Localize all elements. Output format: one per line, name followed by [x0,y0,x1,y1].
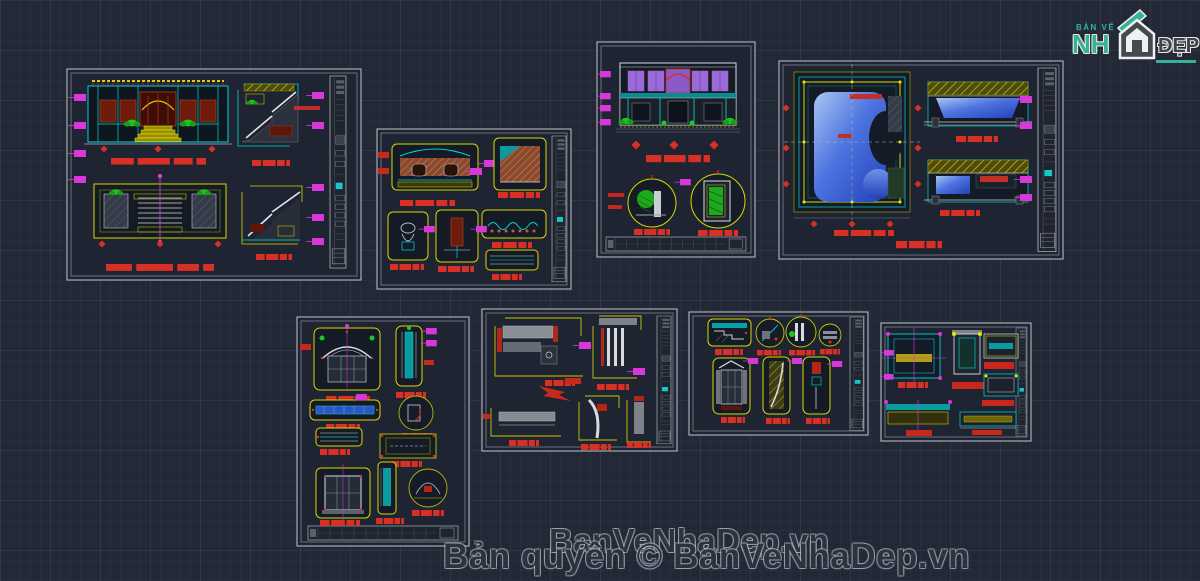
drawing-front-elevation [84,81,232,153]
detail-channel-b [952,330,982,374]
detail-band-c [984,334,1018,369]
detail-fixture-1 [388,212,428,260]
sheet-7 [688,311,869,436]
brand-logo: BẢN VẼ NH ĐẸP [1070,8,1194,66]
detail-hatched-wall [494,138,546,190]
detail-moulding-strip [482,210,546,238]
red-label [565,378,581,384]
cad-canvas: BẢN VẼ NH ĐẸP BanVeNhaDep.vn Bản quyền ©… [0,0,1200,581]
detail-rect-window [316,464,370,526]
sheet-4 [778,60,1064,260]
sheet-6 [481,308,678,452]
sheet-3 [596,41,756,258]
logo-underline [1156,60,1196,63]
drawing-gate-elevation [616,63,740,132]
logo-text-main: NH [1072,29,1110,60]
drawing-pool-plan [783,64,922,228]
detail-window-elevation [713,358,750,423]
watermark-line-2: Bản quyền © BanVeNhaDep.vn [443,537,970,577]
detail-fixture-2 [436,210,478,262]
sheet-8 [880,322,1032,442]
red-title-bar [952,382,988,389]
sheet-2 [376,128,572,290]
detail-vertical-section-2 [803,357,830,424]
logo-text-dep: ĐẸP [1158,35,1199,58]
drawing-floor-plan [94,174,226,248]
detail-fireplace-elevation [378,144,496,190]
detail-vertical-section-1 [763,357,790,424]
sheet-5 [296,316,470,547]
sheet-1 [66,68,362,281]
house-icon [1110,8,1164,64]
detail-moulding-strip-2 [486,250,538,270]
detail-band-d [982,374,1018,406]
